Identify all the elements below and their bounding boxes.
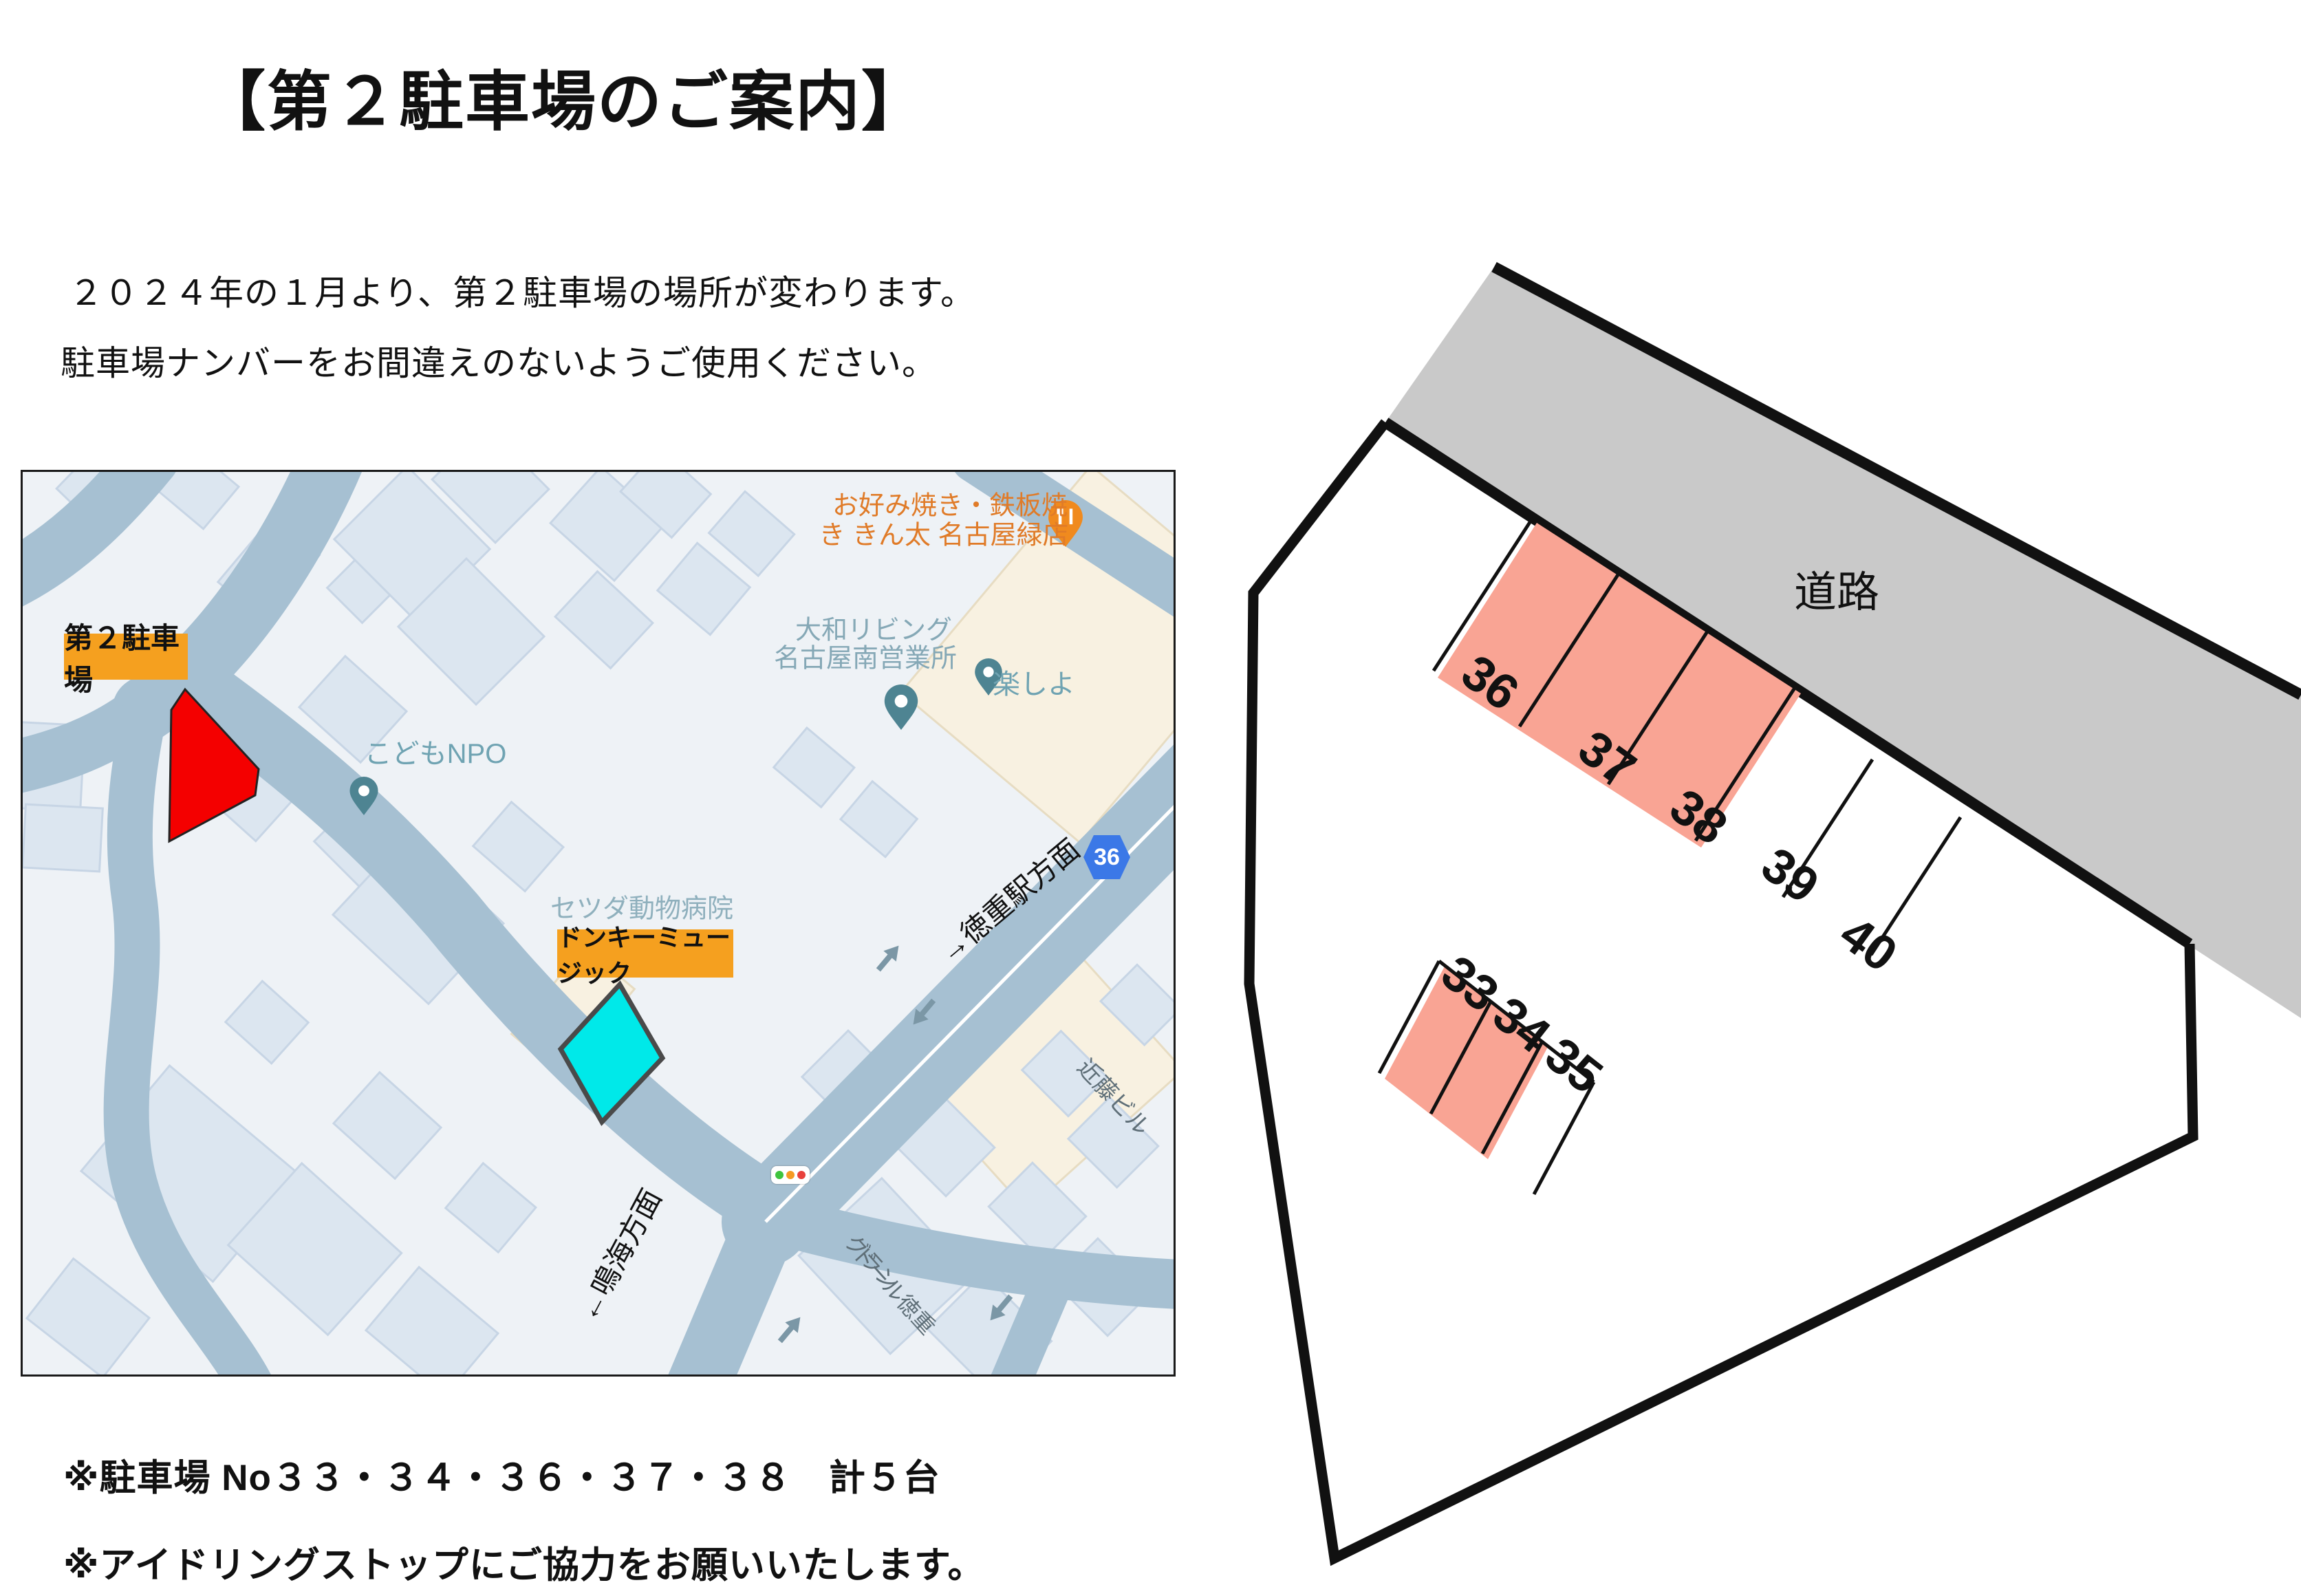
road-strip <box>1385 267 2301 1018</box>
tanoshiyo-label: 楽しよ <box>993 662 1075 702</box>
lot-outline <box>1249 422 2193 1558</box>
donkey-music-label: ドンキーミュージック <box>557 929 733 978</box>
road-top-border <box>1494 267 2301 695</box>
location-map: こどもNPO セツダ動物病院 大和リビング 名古屋南営業所 お好み焼き・鉄板焼 … <box>21 470 1176 1377</box>
note-idling-stop: ※アイドリングストップにご協力をお願いいたします。 <box>63 1536 985 1588</box>
stall-36-label: 36 <box>1451 645 1528 722</box>
upper-stall-lines <box>1434 518 1960 955</box>
stall-37-label: 37 <box>1568 720 1645 797</box>
traffic-light-icon <box>771 1166 810 1184</box>
stall-35-label: 35 <box>1535 1027 1612 1104</box>
stall-38-label: 38 <box>1660 779 1737 856</box>
note-capacity: ※駐車場 No３３・３４・３６・３７・３８ 計５台 <box>63 1449 940 1501</box>
kodomo-npo-label: こどもNPO <box>365 731 507 771</box>
upper-stalls-fill <box>1438 523 1801 848</box>
intro-text-line1: ２０２４年の１月より、第２駐車場の場所が変わります。 <box>69 266 975 315</box>
flyer-page: 【第２駐車場のご案内】 ２０２４年の１月より、第２駐車場の場所が変わります。 駐… <box>0 0 2301 1596</box>
road-bottom-border <box>1385 422 2190 944</box>
stall-39-label: 39 <box>1751 837 1828 914</box>
road-label: 道路 <box>1794 569 1879 616</box>
lower-stall-lines <box>1379 961 1594 1194</box>
stall-33-label: 33 <box>1432 945 1509 1022</box>
parking-lot-map-label: 第２駐車場 <box>64 634 188 680</box>
stall-34-label: 34 <box>1483 986 1560 1064</box>
intro-text-line2: 駐車場ナンバーをお間違えのないようご使用ください。 <box>61 336 937 385</box>
stall-40-label: 40 <box>1830 906 1907 983</box>
yamato-label-line2: 名古屋南営業所 <box>774 637 957 675</box>
kodomo-npo-pin-icon <box>348 777 380 819</box>
page-title: 【第２駐車場のご案内】 <box>201 50 927 143</box>
yamato-pin-icon <box>883 684 920 733</box>
lower-stalls-fill <box>1385 967 1548 1159</box>
kinta-label-line2: き きん太 名古屋緑店 <box>819 514 1068 552</box>
